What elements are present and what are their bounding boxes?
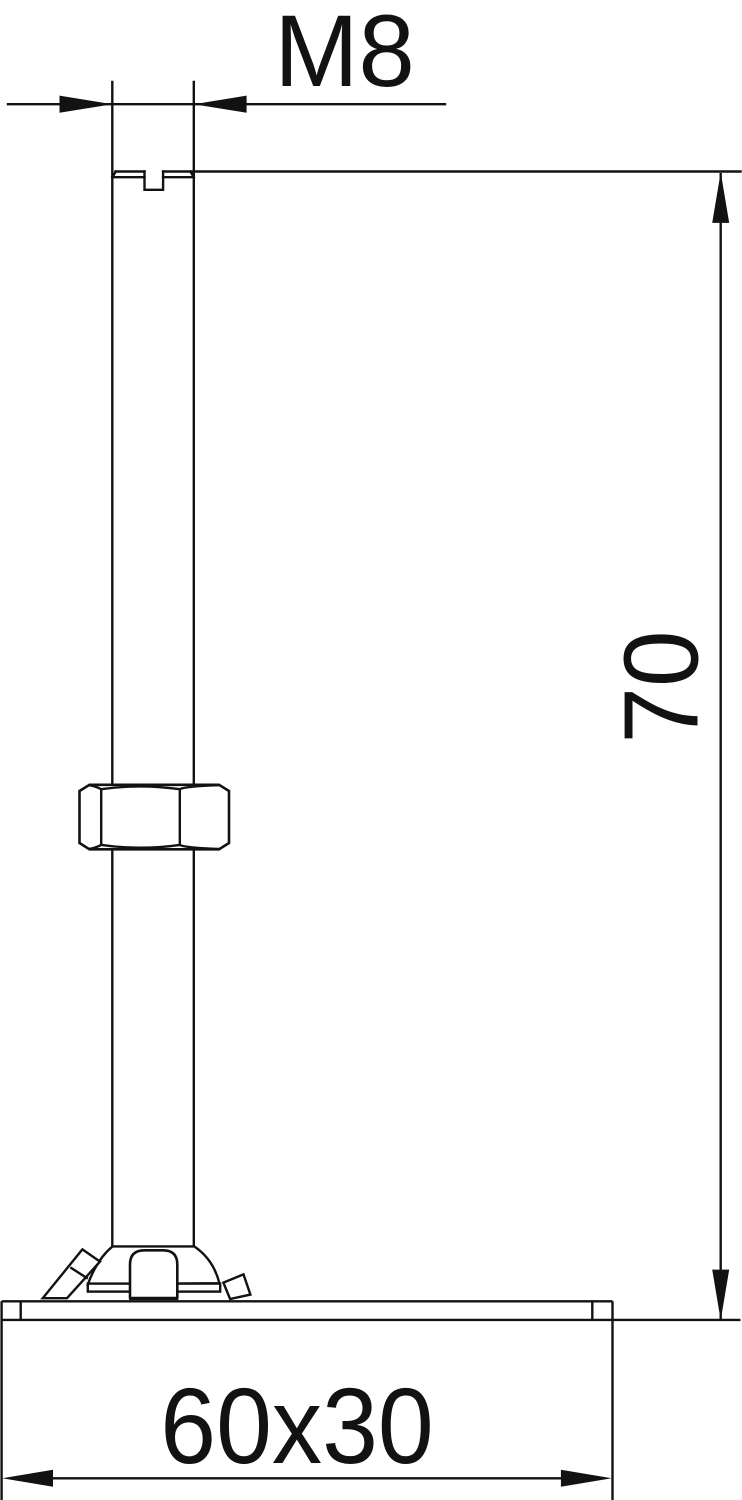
- svg-text:70: 70: [603, 630, 721, 743]
- svg-text:60x30: 60x30: [160, 1367, 433, 1487]
- svg-text:M8: M8: [274, 0, 415, 108]
